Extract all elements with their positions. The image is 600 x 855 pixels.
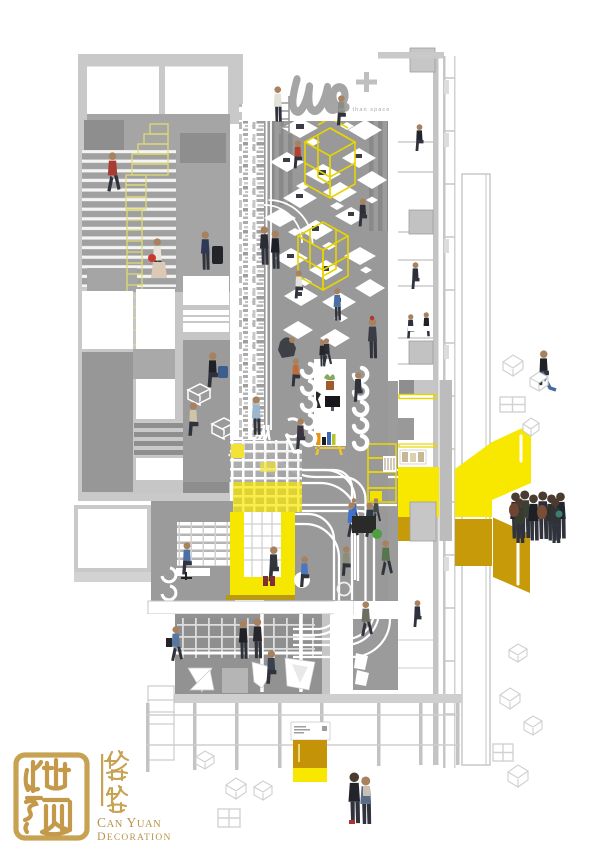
svg-text:more than space: more than space (333, 107, 390, 113)
